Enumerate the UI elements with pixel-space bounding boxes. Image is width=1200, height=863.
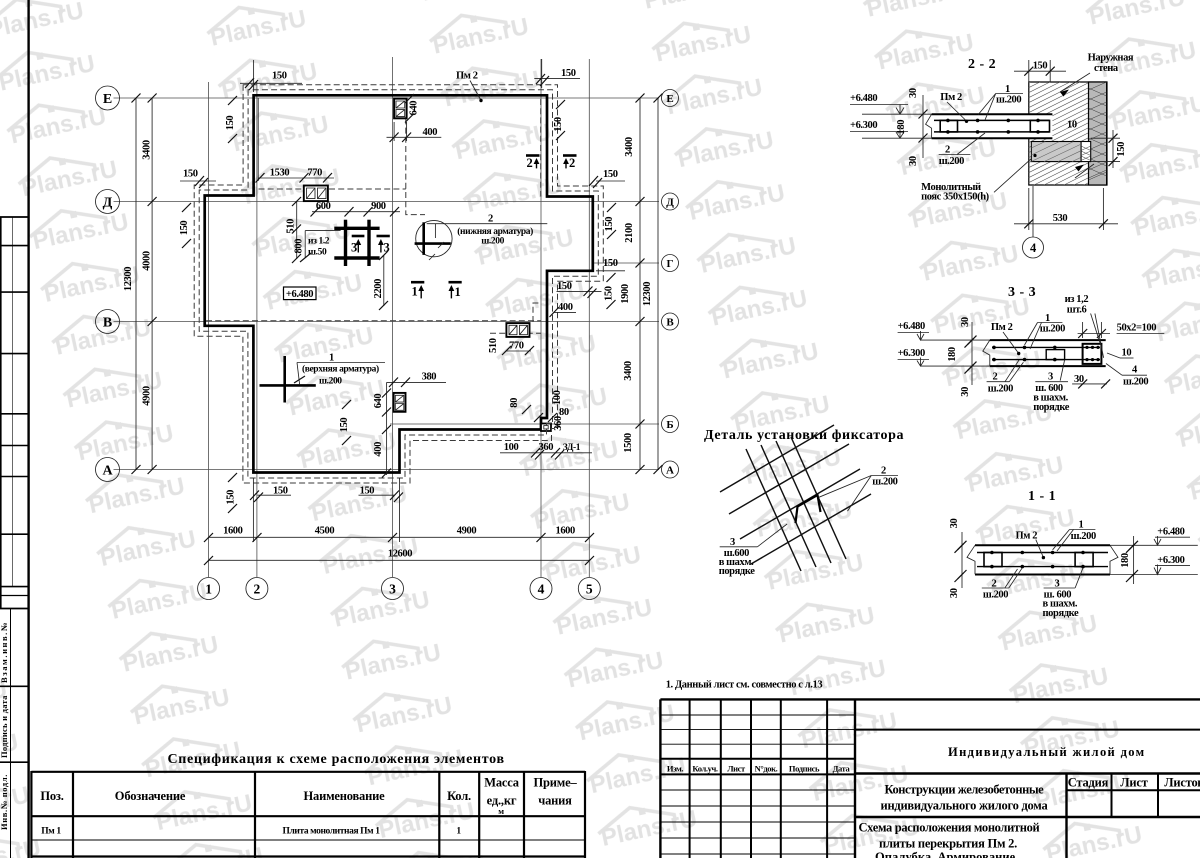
svg-text:770: 770 xyxy=(509,341,524,352)
svg-text:150: 150 xyxy=(339,418,350,433)
svg-text:1: 1 xyxy=(456,827,461,837)
svg-text:640: 640 xyxy=(373,394,384,409)
svg-text:360: 360 xyxy=(539,442,554,453)
svg-text:(верхняя арматура): (верхняя арматура) xyxy=(302,364,379,375)
svg-text:400: 400 xyxy=(558,302,573,313)
svg-text:Г: Г xyxy=(667,258,674,270)
svg-text:30: 30 xyxy=(960,387,971,397)
svg-text:150: 150 xyxy=(603,258,618,269)
svg-text:30: 30 xyxy=(908,156,919,166)
svg-text:ЗД-1: ЗД-1 xyxy=(563,443,581,453)
svg-text:4: 4 xyxy=(538,581,545,596)
svg-text:1600: 1600 xyxy=(223,526,243,537)
svg-text:800: 800 xyxy=(294,239,305,254)
svg-text:1: 1 xyxy=(205,581,212,596)
svg-text:380: 380 xyxy=(422,372,437,383)
svg-text:А: А xyxy=(666,465,674,477)
svg-text:Изм.: Изм. xyxy=(667,764,683,774)
svg-text:порядке: порядке xyxy=(1043,608,1080,619)
svg-text:Обозначение: Обозначение xyxy=(115,789,186,803)
svg-text:из 1.2: из 1.2 xyxy=(308,237,330,247)
svg-text:1900: 1900 xyxy=(620,284,631,304)
svg-text:Д: Д xyxy=(666,197,674,209)
svg-text:1500: 1500 xyxy=(623,433,634,453)
svg-text:3: 3 xyxy=(389,581,396,596)
svg-text:пояс 350х150(h): пояс 350х150(h) xyxy=(921,192,990,203)
svg-text:3: 3 xyxy=(351,241,357,255)
svg-text:Плита монолитная Пм 1: Плита монолитная Пм 1 xyxy=(282,827,380,837)
svg-text:Е: Е xyxy=(666,93,673,105)
svg-text:Опалубка. Армирование: Опалубка. Армирование xyxy=(875,850,1016,858)
svg-text:150: 150 xyxy=(561,68,576,79)
svg-text:Б: Б xyxy=(666,419,673,431)
svg-text:В: В xyxy=(103,316,112,331)
svg-text:1530: 1530 xyxy=(270,168,290,179)
svg-text:150: 150 xyxy=(183,169,198,180)
svg-text:360: 360 xyxy=(553,416,564,431)
svg-text:4900: 4900 xyxy=(457,526,477,537)
svg-text:Кол.уч.: Кол.уч. xyxy=(692,764,717,774)
svg-text:150: 150 xyxy=(1033,61,1048,72)
svg-text:600: 600 xyxy=(316,201,331,212)
svg-text:Стадия: Стадия xyxy=(1068,776,1109,790)
svg-text:Инв.№ подл.: Инв.№ подл. xyxy=(0,775,9,830)
svg-text:чания: чания xyxy=(538,794,572,808)
svg-text:1: 1 xyxy=(455,285,461,299)
svg-text:400: 400 xyxy=(373,442,384,457)
svg-text:Подпись и дата: Подпись и дата xyxy=(0,695,9,758)
svg-text:150: 150 xyxy=(604,217,615,232)
svg-text:ш.200: ш.200 xyxy=(1123,377,1148,388)
svg-text:ш.50: ш.50 xyxy=(308,248,327,258)
svg-text:+6.480: +6.480 xyxy=(898,321,925,332)
svg-text:10: 10 xyxy=(1067,120,1077,131)
svg-text:+6.480: +6.480 xyxy=(850,93,877,104)
svg-text:3: 3 xyxy=(1048,372,1053,383)
svg-text:Д: Д xyxy=(103,196,113,211)
svg-text:3: 3 xyxy=(730,537,735,548)
svg-text:ш.200: ш.200 xyxy=(996,95,1021,106)
svg-text:порядке: порядке xyxy=(1033,402,1070,413)
svg-text:30: 30 xyxy=(1074,374,1084,385)
svg-text:Пм 2: Пм 2 xyxy=(1016,531,1038,542)
svg-text:3400: 3400 xyxy=(142,140,153,160)
svg-text:Спецификация к схеме расположе: Спецификация к схеме расположения элемен… xyxy=(168,752,505,767)
svg-text:Конструкции железобетонные: Конструкции железобетонные xyxy=(885,783,1045,797)
svg-text:Пм 1: Пм 1 xyxy=(41,827,61,837)
svg-text:4900: 4900 xyxy=(142,386,153,406)
svg-text:1. Данный лист см. совместно с: 1. Данный лист см. совместно с л.13 xyxy=(666,680,823,691)
svg-text:10: 10 xyxy=(1122,348,1132,359)
svg-text:Наименование: Наименование xyxy=(304,789,386,803)
svg-text:400: 400 xyxy=(423,127,438,138)
svg-text:180: 180 xyxy=(1120,553,1131,568)
svg-text:+6.300: +6.300 xyxy=(898,348,925,359)
svg-text:шт.6: шт.6 xyxy=(1067,305,1087,316)
svg-text:150: 150 xyxy=(226,490,237,505)
svg-text:100: 100 xyxy=(504,442,519,453)
svg-text:Дата: Дата xyxy=(833,764,851,774)
svg-text:5: 5 xyxy=(586,581,593,596)
svg-text:180: 180 xyxy=(896,120,907,135)
svg-text:ш.200: ш.200 xyxy=(1040,324,1065,335)
svg-text:1: 1 xyxy=(329,353,334,364)
svg-text:2: 2 xyxy=(569,156,575,170)
svg-text:150: 150 xyxy=(553,117,564,132)
svg-text:150: 150 xyxy=(273,486,288,497)
svg-text:30: 30 xyxy=(960,317,971,327)
svg-text:1: 1 xyxy=(412,285,418,299)
svg-text:1: 1 xyxy=(1079,520,1084,531)
svg-text:В: В xyxy=(666,317,674,329)
svg-text:2200: 2200 xyxy=(373,279,384,299)
svg-text:Листов: Листов xyxy=(1164,776,1200,790)
svg-text:12300: 12300 xyxy=(642,282,653,306)
svg-text:3400: 3400 xyxy=(623,361,634,381)
svg-text:из 1,2: из 1,2 xyxy=(1065,294,1089,305)
svg-text:2: 2 xyxy=(881,466,886,477)
svg-text:ш.200: ш.200 xyxy=(1071,531,1096,542)
svg-text:+6.480: +6.480 xyxy=(286,289,313,300)
svg-text:3400: 3400 xyxy=(624,137,635,157)
svg-text:Схема расположения монолитной: Схема расположения монолитной xyxy=(859,821,1040,835)
svg-text:ш.200: ш.200 xyxy=(983,590,1008,601)
svg-text:2100: 2100 xyxy=(624,223,635,243)
svg-text:150: 150 xyxy=(604,286,615,301)
svg-text:150: 150 xyxy=(1116,142,1127,157)
svg-text:510: 510 xyxy=(286,219,297,234)
svg-text:м: м xyxy=(498,806,504,816)
svg-text:12600: 12600 xyxy=(388,549,412,560)
svg-text:ш.200: ш.200 xyxy=(481,237,504,247)
svg-text:+6.480: +6.480 xyxy=(1157,527,1184,538)
svg-text:Лист: Лист xyxy=(727,764,746,774)
svg-text:ш.200: ш.200 xyxy=(939,156,964,167)
svg-text:510: 510 xyxy=(488,338,499,353)
svg-text:ш.200: ш.200 xyxy=(988,384,1013,395)
svg-text:4000: 4000 xyxy=(142,251,153,271)
svg-text:Масса: Масса xyxy=(484,776,519,790)
svg-text:30: 30 xyxy=(949,588,960,598)
svg-text:2: 2 xyxy=(527,156,533,170)
svg-text:Приме–: Приме– xyxy=(534,776,578,790)
svg-text:+6.300: +6.300 xyxy=(1157,555,1184,566)
svg-text:30: 30 xyxy=(949,519,960,529)
svg-text:порядке: порядке xyxy=(719,566,756,577)
svg-text:770: 770 xyxy=(307,168,322,179)
svg-text:Кол.: Кол. xyxy=(447,789,471,803)
svg-text:100: 100 xyxy=(552,390,563,405)
svg-text:ш.200: ш.200 xyxy=(872,477,897,488)
svg-text:1600: 1600 xyxy=(555,526,575,537)
svg-text:2 - 2: 2 - 2 xyxy=(968,57,996,72)
svg-text:(нижняя арматура): (нижняя арматура) xyxy=(457,226,533,237)
svg-text:индивидуального жилого дома: индивидуального жилого дома xyxy=(881,799,1049,813)
svg-text:150: 150 xyxy=(360,486,375,497)
svg-text:150: 150 xyxy=(603,169,618,180)
svg-text:1 - 1: 1 - 1 xyxy=(1028,489,1056,504)
svg-text:900: 900 xyxy=(371,201,386,212)
svg-text:640: 640 xyxy=(409,101,420,116)
svg-text:+6.300: +6.300 xyxy=(850,120,877,131)
svg-text:Пм 2: Пм 2 xyxy=(991,322,1013,333)
svg-text:Пм 2: Пм 2 xyxy=(940,92,962,103)
svg-text:150: 150 xyxy=(225,116,236,131)
svg-text:Лист: Лист xyxy=(1120,776,1147,790)
svg-text:50х2=100: 50х2=100 xyxy=(1117,323,1157,334)
svg-text:плиты перекрытия Пм 2.: плиты перекрытия Пм 2. xyxy=(879,837,1017,851)
svg-text:2: 2 xyxy=(254,581,261,596)
svg-text:Индивидуальный жилой дом: Индивидуальный жилой дом xyxy=(948,745,1145,759)
svg-text:4500: 4500 xyxy=(315,526,335,537)
svg-text:150: 150 xyxy=(557,281,572,292)
svg-text:ш.200: ш.200 xyxy=(319,377,342,387)
svg-text:Е: Е xyxy=(103,92,112,107)
svg-text:Деталь установки фиксатора: Деталь установки фиксатора xyxy=(704,428,904,443)
svg-text:Поз.: Поз. xyxy=(40,789,63,803)
svg-text:Взам.инв.№: Взам.инв.№ xyxy=(0,623,9,683)
svg-text:Подпись: Подпись xyxy=(789,764,820,774)
svg-text:150: 150 xyxy=(272,71,287,82)
svg-text:2: 2 xyxy=(993,372,998,383)
svg-text:4: 4 xyxy=(1030,241,1037,255)
svg-text:2: 2 xyxy=(945,145,950,156)
svg-text:стена: стена xyxy=(1094,63,1119,74)
svg-text:А: А xyxy=(102,464,113,479)
svg-text:180: 180 xyxy=(947,347,958,362)
svg-text:530: 530 xyxy=(1053,213,1068,224)
svg-text:150: 150 xyxy=(179,221,190,236)
svg-text:N°док.: N°док. xyxy=(755,764,778,774)
svg-text:Пм 2: Пм 2 xyxy=(456,71,478,82)
svg-text:Наружная: Наружная xyxy=(1088,53,1134,64)
svg-text:30: 30 xyxy=(908,88,919,98)
svg-text:2: 2 xyxy=(488,214,493,225)
svg-text:3 - 3: 3 - 3 xyxy=(1008,285,1036,300)
svg-text:12300: 12300 xyxy=(123,267,134,291)
svg-text:80: 80 xyxy=(509,398,520,408)
